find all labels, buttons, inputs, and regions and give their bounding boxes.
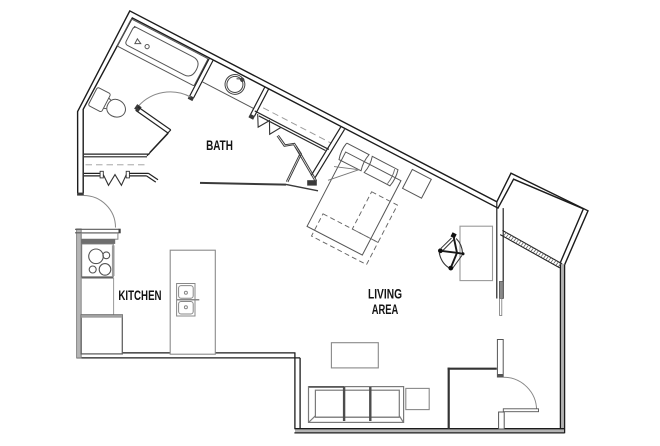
svg-text:BATH: BATH (206, 137, 233, 153)
svg-text:AREA: AREA (372, 301, 399, 318)
svg-text:LIVING: LIVING (368, 286, 402, 302)
svg-text:KITCHEN: KITCHEN (118, 287, 161, 303)
